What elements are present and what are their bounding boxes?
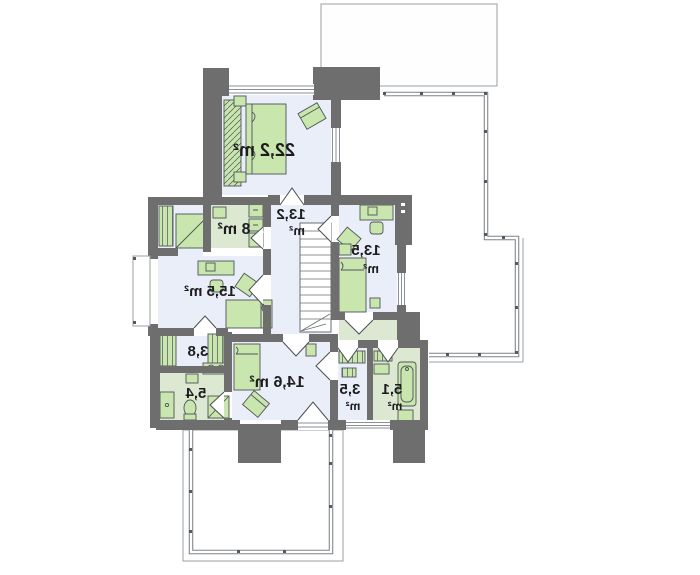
room-area-label: 14,6 m² [249, 374, 304, 391]
washbasin [213, 207, 226, 218]
room-area-label: m² [288, 223, 305, 238]
room-area-label: 13,5 [351, 242, 380, 259]
room-area-label: 3,5 [340, 381, 361, 398]
nightstand [234, 172, 246, 182]
room-area-label: m² [346, 399, 361, 413]
room-area-label: 8 m² [218, 221, 251, 238]
room-area-label: m² [388, 399, 403, 413]
room-area-label: 3,8 [188, 343, 209, 360]
shower-cabinet [160, 392, 174, 418]
nightstand [234, 96, 246, 106]
chair [370, 222, 383, 234]
cabinet [249, 204, 263, 217]
desk [198, 261, 234, 275]
chimney-top [313, 67, 380, 100]
staircase [300, 223, 331, 332]
nightstand [339, 244, 351, 255]
plant [306, 344, 316, 356]
window-bay-left [133, 256, 150, 326]
room-area-label: 15,5 m² [184, 283, 236, 300]
floor-plan-page: 22,2 m² 8 m² 13,2 m² 13,5 m² 15,5 m² 3,8… [0, 0, 700, 575]
room-area-label: 13,2 [276, 206, 305, 223]
chimney-bottom-left [238, 424, 281, 463]
chimney-bottom-right [393, 424, 425, 463]
room-area-label: 22,2 m² [233, 140, 295, 160]
room-area-label: 5,1 [382, 381, 403, 398]
side-table [370, 298, 380, 308]
room-area-label: m² [362, 261, 379, 276]
washbasin [374, 364, 389, 374]
floor-plan-svg: 22,2 m² 8 m² 13,2 m² 13,5 m² 15,5 m² 3,8… [0, 0, 700, 575]
room-area-label: 5,4 [185, 385, 207, 402]
washbasin [186, 374, 198, 383]
